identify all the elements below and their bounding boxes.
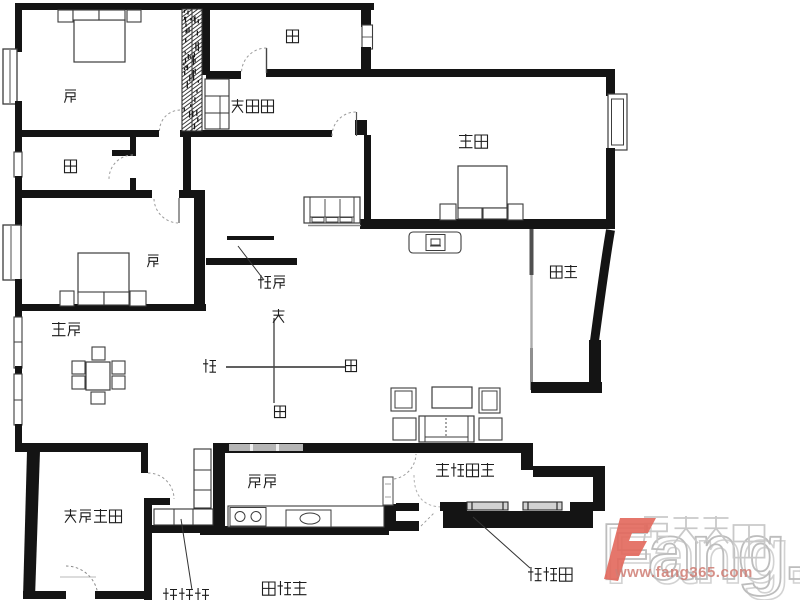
svg-text:www.fang365.com: www.fang365.com bbox=[614, 564, 753, 581]
